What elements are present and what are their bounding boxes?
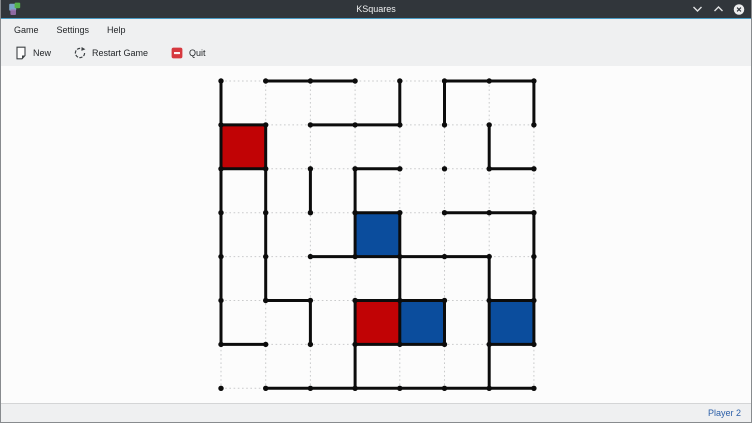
board-dot	[352, 210, 357, 215]
menu-game[interactable]: Game	[5, 19, 48, 40]
board-dot	[308, 298, 313, 303]
board-dot	[487, 122, 492, 127]
board-dot	[308, 386, 313, 391]
game-area	[1, 66, 751, 403]
chevron-up-icon	[713, 5, 724, 13]
board-dot	[352, 166, 357, 171]
board-dot	[397, 166, 402, 171]
board-dot	[218, 166, 223, 171]
application-exit-icon	[170, 46, 184, 60]
board-dot	[308, 122, 313, 127]
captured-square-blue	[489, 301, 534, 345]
restart-game-button[interactable]: Restart Game	[70, 42, 151, 64]
board-dot	[442, 210, 447, 215]
app-icon	[7, 2, 21, 16]
board-dot	[218, 254, 223, 259]
board-dot	[397, 78, 402, 83]
statusbar: Player 2	[1, 403, 751, 422]
maximize-button[interactable]	[712, 3, 724, 15]
board-dot	[308, 166, 313, 171]
board-dot	[263, 386, 268, 391]
board-dot	[263, 166, 268, 171]
chevron-down-icon	[692, 5, 703, 13]
board-dot	[531, 210, 536, 215]
board-dot	[308, 78, 313, 83]
board-dot	[487, 342, 492, 347]
board-dot	[531, 386, 536, 391]
close-button[interactable]	[733, 3, 745, 15]
toolbar: New Restart Game Quit	[1, 40, 751, 66]
board-dot	[263, 78, 268, 83]
board-dot	[442, 298, 447, 303]
board-dot	[263, 298, 268, 303]
board-dot	[308, 210, 313, 215]
board-dot	[442, 342, 447, 347]
board-dot	[397, 122, 402, 127]
board-dot	[531, 342, 536, 347]
board-dot	[263, 210, 268, 215]
captured-square-blue	[355, 213, 400, 257]
board-dot	[308, 342, 313, 347]
board-dot	[352, 298, 357, 303]
board-dot	[531, 78, 536, 83]
board-dot	[442, 254, 447, 259]
board-dot	[487, 166, 492, 171]
board-dot	[352, 342, 357, 347]
board-dot	[442, 166, 447, 171]
board-dot	[218, 122, 223, 127]
quit-button-label: Quit	[189, 48, 206, 58]
ksquares-window: KSquares Game Setting	[0, 0, 752, 423]
titlebar[interactable]: KSquares	[1, 0, 751, 19]
board-dot	[218, 78, 223, 83]
window-title: KSquares	[1, 4, 751, 14]
board-dot	[352, 122, 357, 127]
restart-game-button-label: Restart Game	[92, 48, 148, 58]
board-dot	[263, 254, 268, 259]
restart-icon	[73, 46, 87, 60]
board-dot	[352, 386, 357, 391]
board-dot	[487, 78, 492, 83]
close-icon	[733, 3, 745, 16]
document-new-icon	[14, 46, 28, 60]
menu-settings[interactable]: Settings	[48, 19, 99, 40]
board-dot	[397, 386, 402, 391]
board-dot	[531, 254, 536, 259]
board-dot	[218, 298, 223, 303]
board-dot	[308, 254, 313, 259]
menu-help[interactable]: Help	[98, 19, 135, 40]
board-dot	[397, 254, 402, 259]
captured-square-red	[221, 125, 266, 169]
board-dot	[487, 386, 492, 391]
board-dot	[487, 254, 492, 259]
board-dot	[531, 122, 536, 127]
board-dot	[531, 166, 536, 171]
board-dot	[218, 210, 223, 215]
minimize-button[interactable]	[691, 3, 703, 15]
board-dot	[442, 78, 447, 83]
board-dot	[397, 210, 402, 215]
board-dot	[531, 298, 536, 303]
board-dot	[397, 342, 402, 347]
board-dot	[397, 298, 402, 303]
board-dot	[487, 210, 492, 215]
board-dot	[352, 254, 357, 259]
game-board[interactable]	[1, 66, 751, 403]
quit-button[interactable]: Quit	[167, 42, 209, 64]
board-dot	[263, 122, 268, 127]
captured-square-red	[355, 301, 400, 345]
board-dot	[218, 386, 223, 391]
player-turn-status: Player 2	[708, 408, 741, 418]
board-dot	[218, 342, 223, 347]
board-dot	[487, 298, 492, 303]
captured-square-blue	[400, 301, 445, 345]
new-button-label: New	[33, 48, 51, 58]
new-button[interactable]: New	[11, 42, 54, 64]
menubar: Game Settings Help	[1, 19, 751, 40]
board-dot	[352, 78, 357, 83]
board-dot	[442, 386, 447, 391]
board-dot	[442, 122, 447, 127]
board-dot	[263, 342, 268, 347]
